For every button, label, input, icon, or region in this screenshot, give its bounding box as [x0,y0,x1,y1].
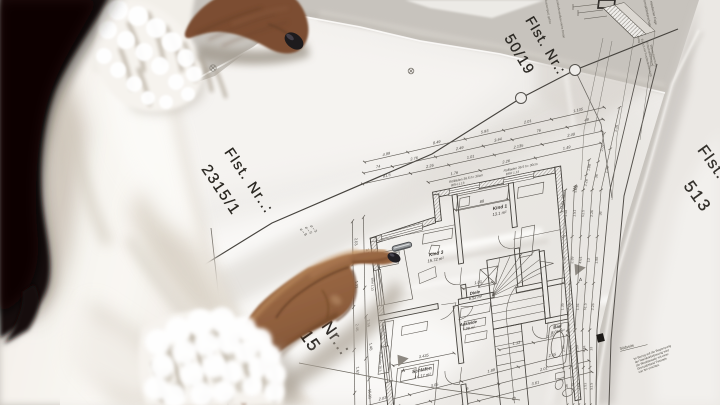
svg-text:1.51: 1.51 [575,303,579,310]
svg-text:36: 36 [594,174,599,179]
svg-text:1.51: 1.51 [583,383,587,390]
svg-text:13: 13 [589,347,593,351]
svg-text:1.35: 1.35 [560,303,564,310]
svg-text:1.51: 1.51 [572,210,576,217]
svg-text:2.01: 2.01 [561,345,566,352]
svg-text:4.61: 4.61 [578,256,582,263]
svg-text:1.58: 1.58 [564,210,568,217]
svg-text:51.5: 51.5 [589,383,593,390]
svg-text:13: 13 [586,258,590,262]
svg-text:4.61: 4.61 [582,345,586,352]
svg-text:2.26: 2.26 [590,210,594,217]
svg-text:2.26: 2.26 [591,303,596,310]
svg-text:51.5: 51.5 [583,303,587,310]
svg-text:2.39: 2.39 [575,345,579,352]
svg-text:1.58: 1.58 [568,303,572,310]
svg-text:2.39: 2.39 [570,256,574,263]
svg-text:BRH 1.13: BRH 1.13 [370,277,374,291]
svg-text:1.88: 1.88 [595,256,600,263]
svg-text:36: 36 [598,211,602,215]
svg-text:51.5: 51.5 [581,210,585,217]
svg-text:2.26: 2.26 [562,256,566,263]
svg-text:36: 36 [565,384,569,388]
svg-text:1.35: 1.35 [571,383,575,390]
svg-text:2.26: 2.26 [568,345,572,352]
svg-text:1.58: 1.58 [577,383,581,390]
